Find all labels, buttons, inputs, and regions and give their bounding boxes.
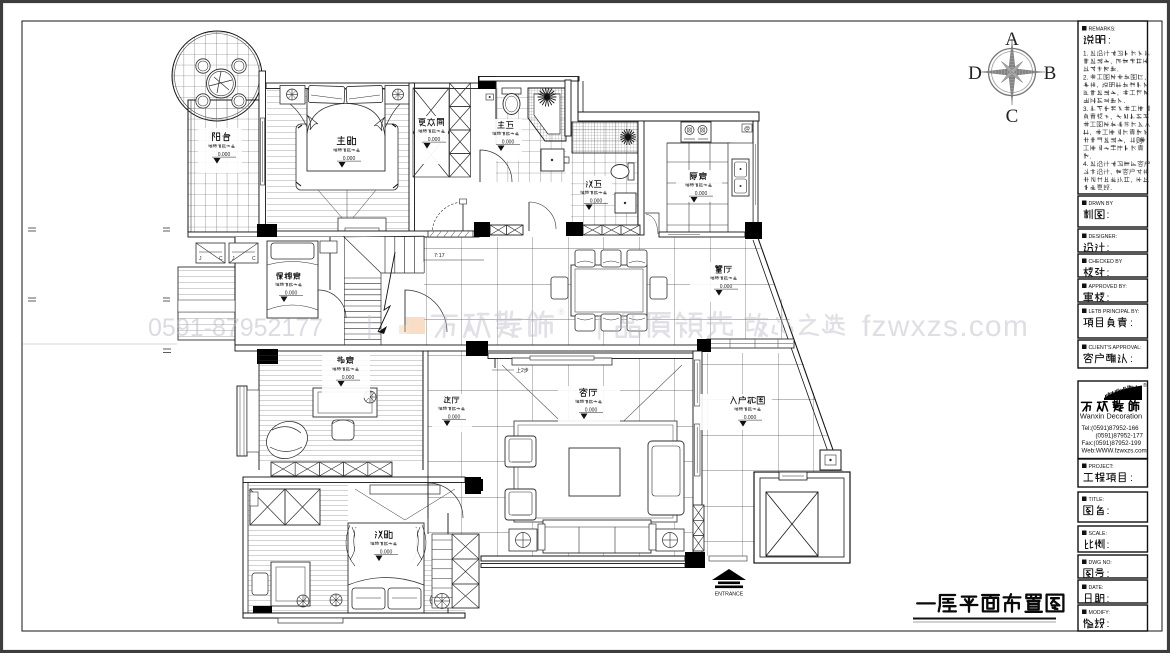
svg-text:|: | bbox=[596, 310, 603, 340]
svg-text:C: C bbox=[1006, 106, 1019, 127]
svg-text:A: A bbox=[1005, 29, 1019, 50]
svg-text:.: . bbox=[1090, 153, 1092, 160]
svg-text:Tel:(0591)87952-166: Tel:(0591)87952-166 bbox=[1082, 425, 1140, 432]
svg-text:Wanxin Decoration: Wanxin Decoration bbox=[1080, 412, 1142, 421]
svg-text:,: , bbox=[1144, 74, 1146, 81]
svg-text:上2步: 上2步 bbox=[516, 367, 529, 374]
svg-text:,: , bbox=[1124, 138, 1126, 145]
svg-text::: : bbox=[1107, 568, 1110, 580]
svg-text:ENTRANCE: ENTRANCE bbox=[715, 592, 744, 598]
svg-text:TITLE:: TITLE: bbox=[1089, 497, 1105, 503]
svg-text:CHECKED BY: CHECKED BY bbox=[1089, 259, 1123, 265]
svg-text:DATE:: DATE: bbox=[1089, 585, 1104, 591]
svg-text:C: C bbox=[219, 256, 223, 262]
svg-text::: : bbox=[1130, 472, 1133, 484]
svg-text:7:17: 7:17 bbox=[434, 253, 445, 259]
svg-text:B: B bbox=[1044, 63, 1057, 84]
svg-text:fzwxzs.com: fzwxzs.com bbox=[862, 310, 1029, 343]
svg-text:,: , bbox=[1110, 169, 1112, 176]
svg-text::: : bbox=[1130, 353, 1133, 365]
svg-text:,: , bbox=[1117, 90, 1119, 97]
svg-text:.: . bbox=[1086, 51, 1088, 58]
svg-text:,: , bbox=[1110, 59, 1112, 66]
svg-text::: : bbox=[1107, 593, 1110, 605]
svg-text:.: . bbox=[1110, 185, 1112, 192]
svg-text::: : bbox=[1107, 618, 1110, 630]
svg-text:PROJECT:: PROJECT: bbox=[1089, 464, 1114, 470]
svg-text:.: . bbox=[1086, 106, 1088, 113]
svg-text:Fax:(0591)87952-199: Fax:(0591)87952-199 bbox=[1082, 440, 1142, 447]
svg-text:Web:WWW.fzwxzs.com: Web:WWW.fzwxzs.com bbox=[1082, 448, 1147, 455]
svg-text:,: , bbox=[1097, 82, 1099, 89]
svg-text::: : bbox=[1130, 317, 1133, 329]
svg-text:DRWN BY: DRWN BY bbox=[1089, 201, 1114, 207]
svg-text:.: . bbox=[1086, 161, 1088, 168]
svg-text:CLIENT'S APPROVAL:: CLIENT'S APPROVAL: bbox=[1089, 345, 1142, 351]
svg-text:SCALE:: SCALE: bbox=[1089, 531, 1107, 537]
svg-text::: : bbox=[1107, 292, 1110, 304]
svg-text:D: D bbox=[968, 63, 982, 84]
svg-text::: : bbox=[1107, 242, 1110, 254]
svg-text:,: , bbox=[1131, 177, 1133, 184]
svg-text:C: C bbox=[252, 256, 256, 262]
svg-text:LETB PRINCIPAL BY:: LETB PRINCIPAL BY: bbox=[1089, 309, 1140, 315]
svg-text:REMARKS:: REMARKS: bbox=[1089, 27, 1116, 33]
svg-text:DESIGNER:: DESIGNER: bbox=[1089, 234, 1118, 240]
svg-text:DWG NO:: DWG NO: bbox=[1089, 560, 1112, 566]
svg-text:,: , bbox=[1090, 130, 1092, 137]
svg-text:MODIFY:: MODIFY: bbox=[1089, 610, 1110, 616]
svg-text:0591-87952177: 0591-87952177 bbox=[148, 314, 323, 342]
svg-text:|: | bbox=[366, 310, 373, 340]
svg-text:APPROVED BY:: APPROVED BY: bbox=[1089, 284, 1127, 290]
svg-text::: : bbox=[1107, 267, 1110, 279]
svg-text:.: . bbox=[1086, 74, 1088, 81]
svg-text::: : bbox=[1108, 36, 1111, 47]
svg-text::: : bbox=[1107, 209, 1110, 221]
svg-text:,: , bbox=[1110, 114, 1112, 121]
svg-text:.: . bbox=[1117, 66, 1119, 73]
svg-text:则: 则 bbox=[1136, 137, 1142, 145]
svg-text::: : bbox=[1107, 539, 1110, 551]
svg-text:@: @ bbox=[744, 127, 750, 133]
svg-text:(0591)87952-177: (0591)87952-177 bbox=[1096, 433, 1144, 440]
svg-text:®: ® bbox=[558, 307, 565, 317]
svg-text::: : bbox=[1107, 505, 1110, 517]
svg-text:®: ® bbox=[1143, 382, 1147, 389]
svg-text:.: . bbox=[1124, 98, 1126, 105]
